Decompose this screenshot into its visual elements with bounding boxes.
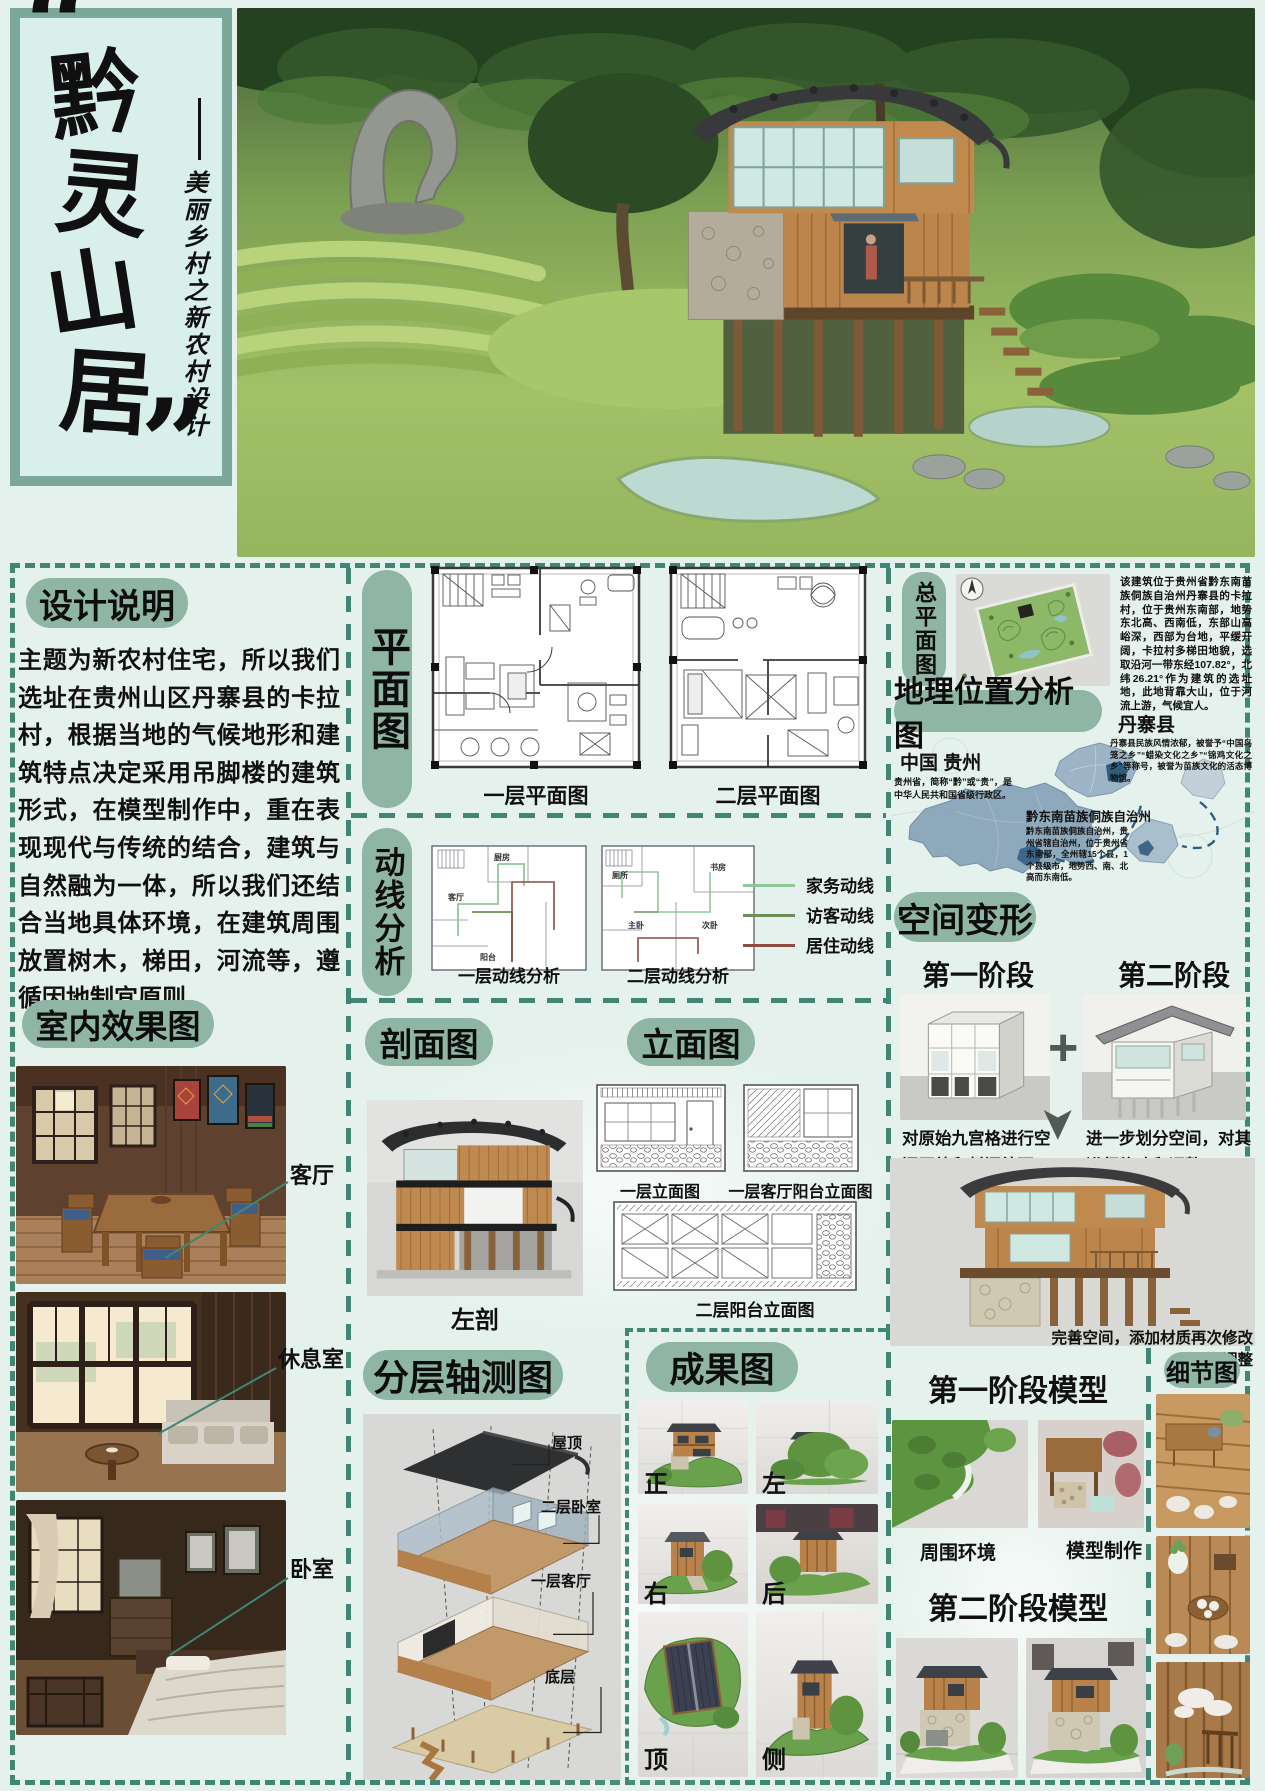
open-quote: “ <box>24 0 93 86</box>
result-label-side: 侧 <box>762 1740 786 1775</box>
divider-col1 <box>346 568 351 1780</box>
interior-photo-lounge <box>16 1292 286 1492</box>
details-heading: 细节图 <box>1164 1352 1240 1388</box>
elevation-3-label: 二层阳台立面图 <box>650 1296 860 1321</box>
detail-photo-3 <box>1156 1662 1250 1778</box>
stage2-model-heading: 第二阶段模型 <box>890 1584 1146 1628</box>
axonometric-drawing <box>363 1414 621 1780</box>
circulation-plan-2: 厕所 书房 主卧 次卧 <box>598 842 758 974</box>
result-label-back: 后 <box>762 1574 786 1609</box>
room-label: 主卧 <box>628 922 644 930</box>
stage1-model-heading: 第一阶段模型 <box>890 1366 1146 1410</box>
interior-label-lounge: 休息室 <box>278 1342 344 1374</box>
geo-qdn-title: 黔东南苗族侗族自治州 <box>1026 806 1151 825</box>
design-notes-body: 主题为新农村住宅，所以我们选址在贵州山区丹寨县的卡拉村，根据当地的气候地形和建筑… <box>18 642 340 1018</box>
environment-photo <box>892 1420 1028 1528</box>
room-label: 客厅 <box>448 894 464 902</box>
detail-photo-2 <box>1156 1536 1250 1654</box>
section-label: 左剖 <box>367 1300 583 1335</box>
floor-plan-2 <box>668 565 868 770</box>
axon-label-base: 底层 <box>545 1666 575 1687</box>
room-label: 书房 <box>710 864 726 872</box>
legend-label-visitor: 访客动线 <box>806 902 874 927</box>
massing-stage2-image <box>1082 994 1246 1120</box>
environment-label: 周围环境 <box>920 1538 996 1565</box>
axonometric-heading: 分层轴测图 <box>363 1350 563 1400</box>
legend-label-housework: 家务动线 <box>806 872 874 897</box>
room-label: 厕所 <box>612 872 628 880</box>
geo-qdn-desc: 黔东南苗族侗族自治州，贵州省辖自治州，位于贵州省东南部，全州辖15个县，1个县级… <box>1026 826 1128 884</box>
elevation-2-label: 一层客厅阳台立面图 <box>718 1178 883 1202</box>
axon-label-bedroom: 二层卧室 <box>541 1496 601 1517</box>
geo-guizhou-title: 中国 贵州 <box>900 748 981 775</box>
elevation-1-label: 一层立面图 <box>580 1178 740 1202</box>
divider-plans <box>351 813 886 818</box>
final-model-image <box>890 1158 1255 1346</box>
title-char: 山 <box>39 238 145 350</box>
circulation-plan-1: 厨房 客厅 阳台 <box>428 842 590 974</box>
floor-plan-1 <box>430 565 642 770</box>
floor-plan-1-label: 一层平面图 <box>430 780 642 810</box>
poster-title: 黔 灵 山 居 <box>50 46 142 442</box>
result-label-front: 正 <box>644 1464 668 1499</box>
stage2-model-photo-2 <box>1026 1638 1146 1778</box>
close-quote: ” <box>140 384 209 504</box>
interior-photo-living <box>16 1066 286 1284</box>
interior-label-living: 客厅 <box>290 1158 334 1190</box>
legend-line-living <box>743 944 795 947</box>
subtitle-dash <box>198 98 201 160</box>
result-label-top: 顶 <box>644 1740 668 1775</box>
elevation-1 <box>595 1083 727 1173</box>
circulation-heading: 动线分析 <box>362 828 412 996</box>
divider-circulation <box>351 998 886 1003</box>
site-plan-description: 该建筑位于贵州省黔东南苗族侗族自治州丹寨县的卡拉村，位于贵州东南部，地势东北高、… <box>1120 576 1252 714</box>
floor-plan-2-label: 二层平面图 <box>668 780 868 810</box>
compass-icon <box>961 578 983 600</box>
legend-line-visitor <box>743 914 795 917</box>
geo-guizhou-desc: 贵州省，简称“黔”或“贵”，是中华人民共和国省级行政区。 <box>894 776 1012 801</box>
stage2-model-photo-1 <box>896 1638 1018 1778</box>
elevation-3 <box>612 1200 858 1292</box>
interior-label-bedroom: 卧室 <box>290 1552 334 1584</box>
results-heading: 成果图 <box>646 1342 798 1392</box>
room-label: 次卧 <box>702 922 718 930</box>
circulation-plan-2-label: 二层动线分析 <box>598 962 758 987</box>
stage2-label: 第二阶段 <box>1118 954 1230 994</box>
poster: “ 黔 灵 山 居 美丽乡村之新农村设计 ” <box>0 0 1265 1791</box>
design-notes-heading: 设计说明 <box>26 578 188 628</box>
interior-photo-bedroom <box>16 1500 286 1735</box>
plus-icon: + <box>1048 1018 1078 1078</box>
massing-stage1-image <box>900 994 1050 1120</box>
result-label-left: 左 <box>762 1464 786 1499</box>
detail-photo-1 <box>1156 1394 1250 1528</box>
axon-label-living: 一层客厅 <box>531 1570 591 1591</box>
room-label: 阳台 <box>480 954 496 962</box>
title-char: 灵 <box>52 142 152 249</box>
floor-plans-heading: 平面图 <box>362 570 412 808</box>
interior-heading: 室内效果图 <box>22 1000 214 1048</box>
down-arrow-icon: ➤ <box>1033 1105 1084 1142</box>
circulation-plan-1-label: 一层动线分析 <box>428 962 590 987</box>
section-drawing <box>367 1100 583 1296</box>
model-making-label: 模型制作 <box>1066 1536 1142 1563</box>
result-label-right: 右 <box>644 1574 668 1609</box>
stage1-label: 第一阶段 <box>922 954 1034 994</box>
axon-label-roof: 屋顶 <box>552 1432 582 1453</box>
geo-danzhai-title: 丹寨县 <box>1118 710 1175 737</box>
elevation-2 <box>742 1083 860 1173</box>
elevation-heading: 立面图 <box>627 1018 755 1066</box>
room-label: 厨房 <box>494 854 510 862</box>
divider-details <box>1146 1348 1151 1780</box>
legend-line-housework <box>743 884 795 887</box>
geo-danzhai-desc: 丹寨县民族风情浓郁，被誉予“中国鸟笼之乡”“蜡染文化之乡”“锦鸡文化之乡”等称号… <box>1110 738 1252 784</box>
legend-label-living: 居住动线 <box>806 932 874 957</box>
section-heading: 剖面图 <box>365 1018 493 1066</box>
model-making-photo <box>1038 1420 1144 1528</box>
space-transform-heading: 空间变形 <box>894 892 1036 942</box>
hero-image <box>237 8 1255 557</box>
